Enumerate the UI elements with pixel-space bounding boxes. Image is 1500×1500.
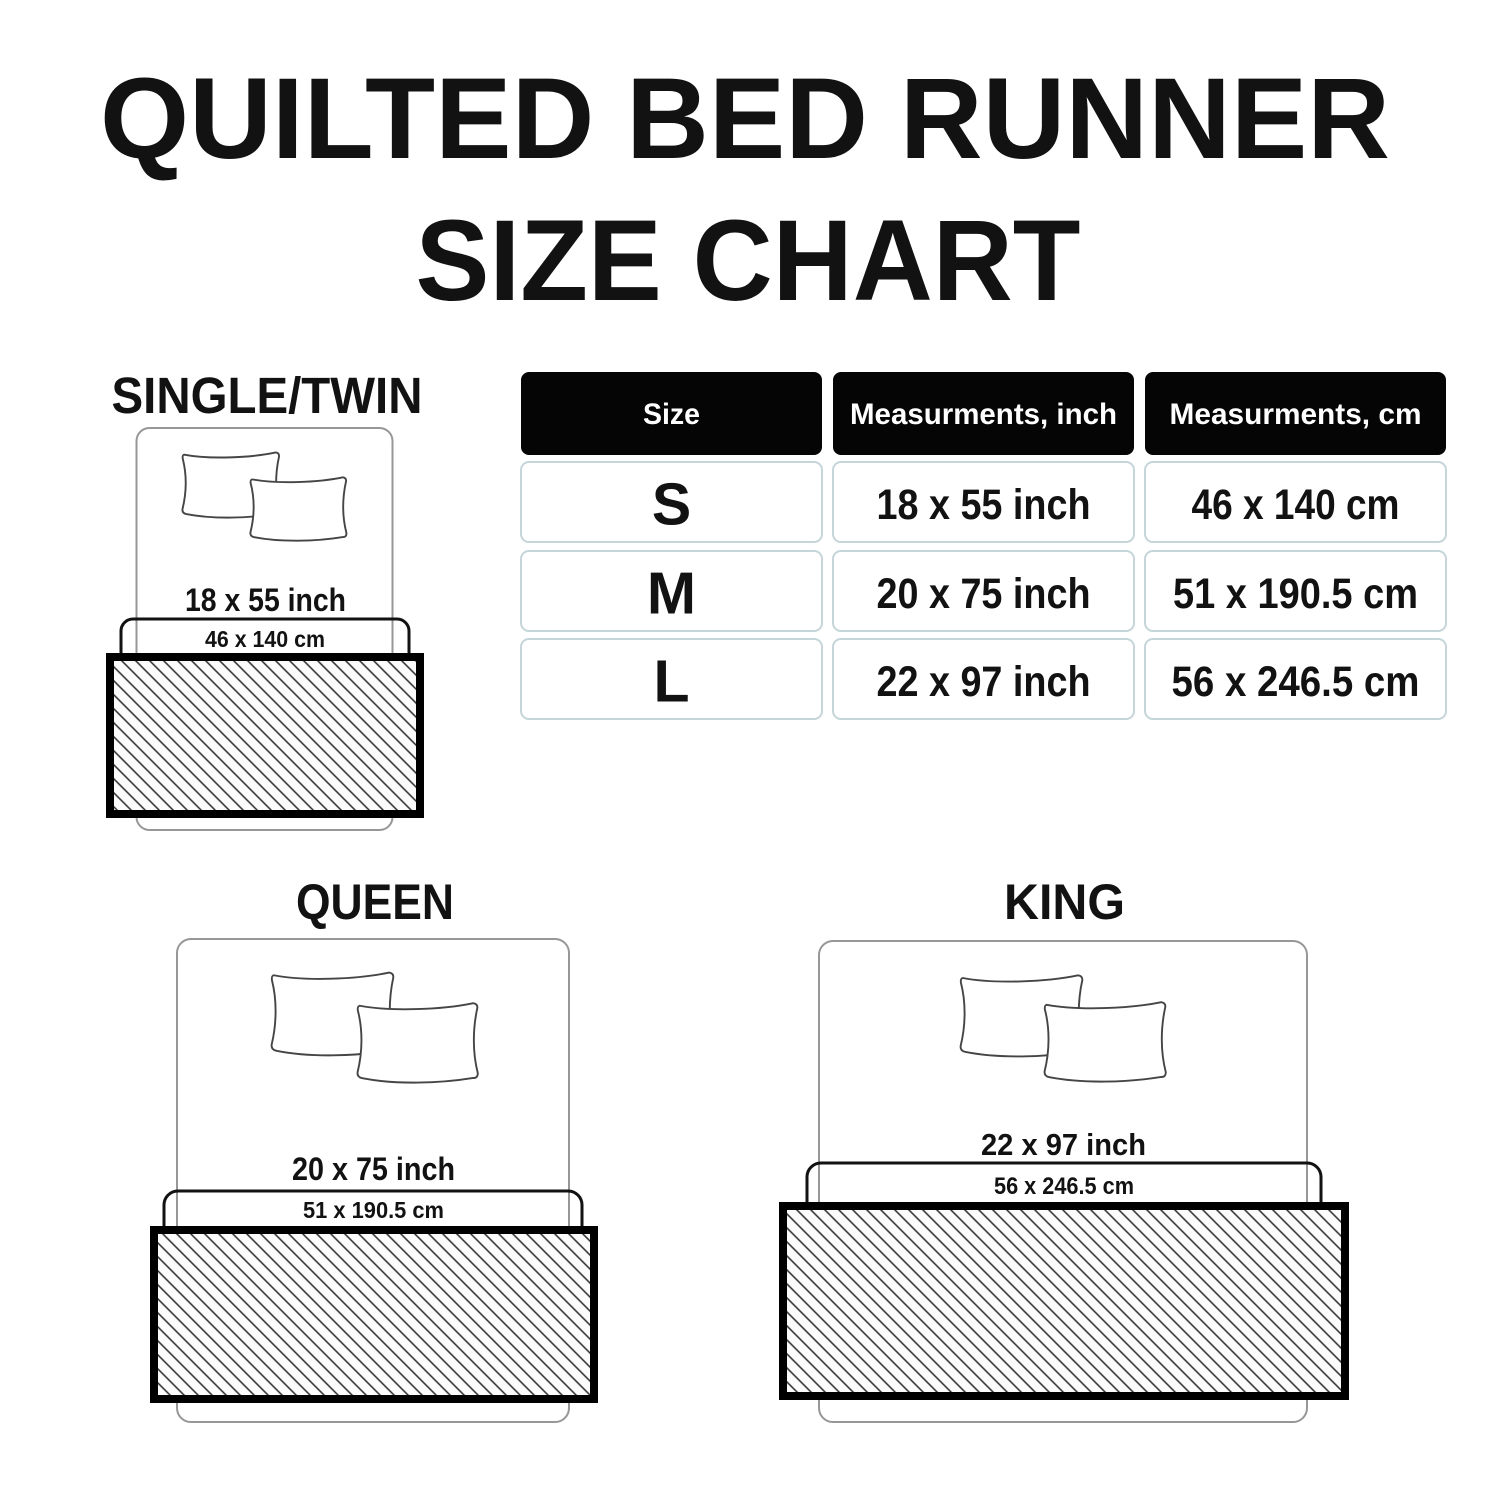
svg-text:QUEEN: QUEEN (296, 874, 454, 930)
svg-text:20 x 75 inch: 20 x 75 inch (292, 1151, 455, 1187)
svg-text:56 x 246.5 cm: 56 x 246.5 cm (1172, 658, 1420, 706)
svg-text:51 x 190.5 cm: 51 x 190.5 cm (1173, 570, 1418, 618)
svg-text:Measurments, inch: Measurments, inch (850, 398, 1117, 431)
svg-text:Measurments, cm: Measurments, cm (1170, 398, 1422, 431)
svg-text:M: M (647, 561, 696, 627)
svg-text:SIZE CHART: SIZE CHART (416, 197, 1081, 325)
svg-text:51 x 190.5 cm: 51 x 190.5 cm (303, 1197, 444, 1223)
svg-text:Size: Size (643, 398, 700, 431)
svg-text:KING: KING (1004, 874, 1125, 930)
svg-text:46 x 140 cm: 46 x 140 cm (1192, 481, 1400, 529)
svg-text:56 x 246.5 cm: 56 x 246.5 cm (994, 1173, 1134, 1200)
svg-text:L: L (653, 649, 689, 715)
svg-text:22 x 97 inch: 22 x 97 inch (877, 658, 1091, 706)
svg-text:18 x 55 inch: 18 x 55 inch (877, 481, 1091, 529)
svg-text:20 x 75 inch: 20 x 75 inch (877, 570, 1091, 618)
svg-text:46 x 140 cm: 46 x 140 cm (205, 626, 325, 652)
svg-text:18 x 55 inch: 18 x 55 inch (185, 582, 346, 618)
svg-text:22 x 97 inch: 22 x 97 inch (981, 1127, 1146, 1162)
svg-text:S: S (652, 472, 691, 538)
svg-text:SINGLE/TWIN: SINGLE/TWIN (112, 367, 423, 424)
svg-text:QUILTED BED RUNNER: QUILTED BED RUNNER (100, 55, 1390, 183)
